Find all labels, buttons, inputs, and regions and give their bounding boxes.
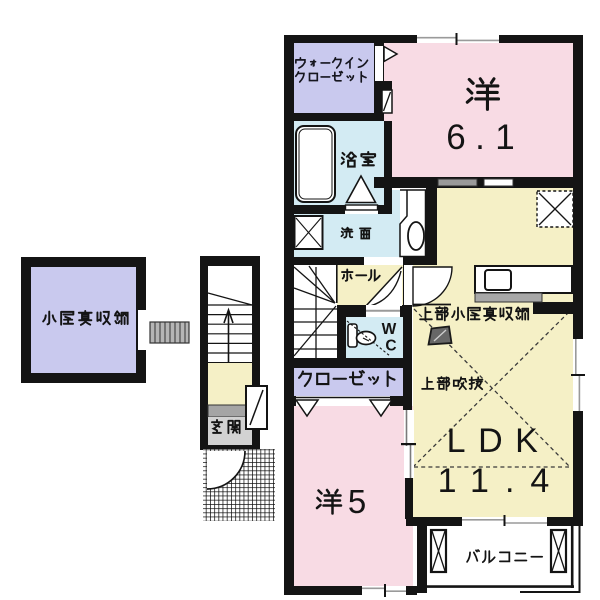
svg-text:LDK: LDK (447, 422, 551, 460)
svg-text:11.4: 11.4 (438, 462, 566, 500)
svg-text:5: 5 (348, 483, 366, 520)
svg-text:.: . (475, 118, 485, 157)
svg-text:6: 6 (446, 118, 465, 157)
svg-text:C: C (385, 338, 396, 355)
svg-text:1: 1 (495, 118, 514, 157)
svg-text:W: W (382, 321, 397, 338)
